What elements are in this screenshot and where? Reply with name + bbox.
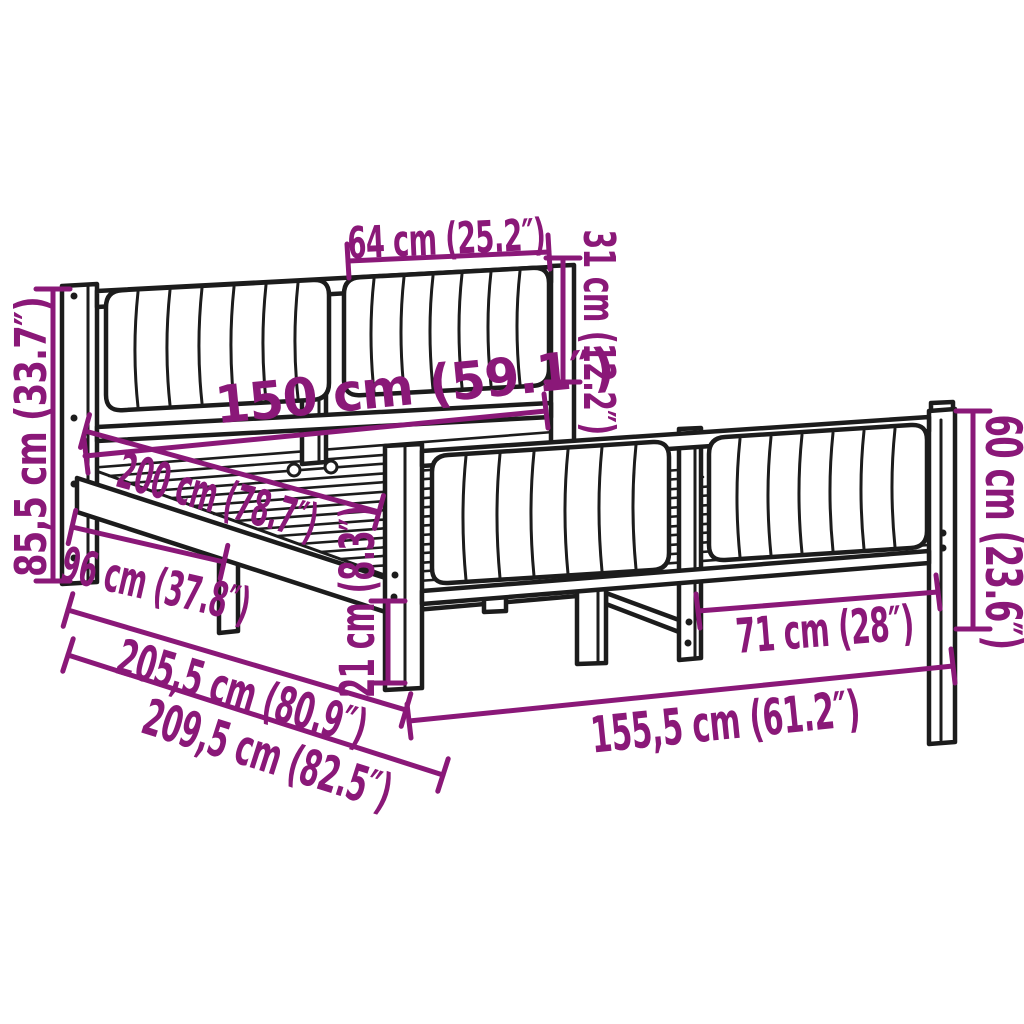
slat-knob bbox=[288, 464, 300, 476]
dimension-label: 21 cm (8.3″) bbox=[330, 506, 386, 698]
dimension-label: 155,5 cm (61.2″) bbox=[588, 680, 862, 765]
center-support-leg bbox=[577, 588, 606, 664]
bed-frame-dimension-drawing: 64 cm (25.2″) 31 cm (12.2″) 85,5 cm (33.… bbox=[0, 0, 1024, 1024]
dimension-footboard-height: 60 cm (23.6″) bbox=[956, 411, 1024, 650]
dimension-footboard-section-width: 71 cm (28″) bbox=[696, 575, 940, 665]
dimension-total-width: 155,5 cm (61.2″) bbox=[407, 649, 955, 765]
product-dimension-diagram: 64 cm (25.2″) 31 cm (12.2″) 85,5 cm (33.… bbox=[0, 0, 1024, 1024]
dimension-label: 85,5 cm (33.7″) bbox=[6, 297, 57, 577]
dimension-label: 64 cm (25.2″) bbox=[346, 210, 546, 270]
dimension-label: 31 cm (12.2″) bbox=[573, 230, 624, 435]
dimension-label: 60 cm (23.6″) bbox=[974, 415, 1024, 650]
support-brace-right bbox=[606, 593, 679, 632]
